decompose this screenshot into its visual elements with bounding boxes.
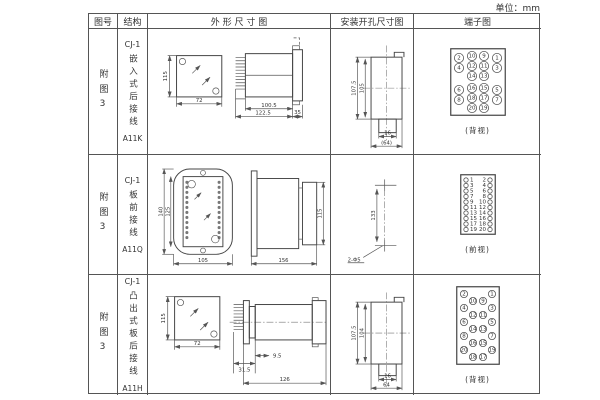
dim-front-inner-h: 125 xyxy=(165,207,171,217)
structure-label: 嵌入式后接线 xyxy=(127,54,139,129)
install-cell-a11k: 107.5 105 16 (64) xyxy=(331,29,414,155)
svg-text:5: 5 xyxy=(490,319,494,325)
dim-side-d1: 31.5 xyxy=(238,367,250,373)
dim-front-outer-h: 140 xyxy=(158,207,164,217)
outline-cell-a11h: 115 72 31.5 9.5 126 xyxy=(148,275,331,395)
header-terminal-diagram: 端子图 xyxy=(464,15,491,28)
dim-side-overall: 122.5 xyxy=(255,110,270,116)
svg-text:7: 7 xyxy=(495,97,499,103)
terminal-cell-a11h: 2468201012141618911131517135719 (背视) xyxy=(414,275,541,395)
terminal-diagram-front-a11q: 1234567891011121314151617181920 xyxy=(460,174,496,235)
svg-text:18: 18 xyxy=(469,354,476,360)
svg-text:18: 18 xyxy=(468,95,475,101)
dim-side-flange: 35 xyxy=(294,110,301,116)
svg-text:14: 14 xyxy=(469,326,476,332)
dim-front-height: 115 xyxy=(161,313,167,323)
svg-text:9: 9 xyxy=(481,298,485,304)
svg-text:17: 17 xyxy=(479,354,486,360)
header-figure-no: 图号 xyxy=(94,15,112,28)
svg-text:12: 12 xyxy=(469,312,476,318)
type-code: A11H xyxy=(122,384,142,393)
dim-hole-inner-h: 105 xyxy=(359,83,365,93)
svg-text:19: 19 xyxy=(488,347,495,353)
outline-drawing-a11k: 115 72 100.5 122.5 35 xyxy=(149,32,329,152)
dim-side-inner: 100.5 xyxy=(261,102,276,108)
svg-text:12: 12 xyxy=(468,63,475,69)
terminal-cell-a11k: 2468101214161820911131517191357 (背视) xyxy=(414,29,541,155)
svg-text:1: 1 xyxy=(495,55,499,61)
model-label: CJ-1 xyxy=(125,176,141,185)
install-cell-a11q: 133 2-Φ5 xyxy=(331,155,414,275)
structure-label: 凸出式板后接线 xyxy=(127,291,139,379)
dim-front-width: 105 xyxy=(198,258,208,264)
dim-hole-outer-h: 107.5 xyxy=(351,80,357,95)
dim-front-width: 72 xyxy=(196,97,203,103)
svg-text:10: 10 xyxy=(469,298,476,304)
dim-hole-outer-h: 107.5 xyxy=(351,325,357,340)
install-drawing-a11h: 107.5 104 16 64 xyxy=(332,277,413,394)
svg-text:20: 20 xyxy=(460,347,467,353)
svg-text:20: 20 xyxy=(468,105,475,111)
dimension-spec-table: 图号 结构 外 形 尺 寸 图 安装开孔尺寸图 端子图 附图3 CJ-1 嵌入式… xyxy=(88,13,540,394)
svg-text:6: 6 xyxy=(462,319,466,325)
terminal-view-caption: (前视) xyxy=(465,244,490,255)
svg-text:15: 15 xyxy=(479,340,486,346)
type-code: A11Q xyxy=(122,245,143,254)
model-label: CJ-1 xyxy=(125,277,141,286)
figure-number: 附图3 xyxy=(97,312,110,358)
svg-text:6: 6 xyxy=(457,87,461,93)
dim-hole-outer-w: (64) xyxy=(381,140,392,146)
header-mounting-holes: 安装开孔尺寸图 xyxy=(340,15,403,28)
outline-drawing-a11q: 140 125 105 115 156 xyxy=(149,156,329,273)
dim-hole-spacing: 133 xyxy=(370,210,376,220)
svg-text:8: 8 xyxy=(457,97,461,103)
dim-side-d2: 9.5 xyxy=(273,353,282,359)
outline-cell-a11q: 140 125 105 115 156 xyxy=(148,155,331,275)
dim-hole-inner-h: 104 xyxy=(359,327,365,338)
figure-number: 附图3 xyxy=(97,192,110,238)
terminal-view-caption: (背视) xyxy=(465,125,490,136)
outline-cell-a11k: 115 72 100.5 122.5 35 xyxy=(148,29,331,155)
terminal-cell-a11q: 1234567891011121314151617181920 (前视) xyxy=(414,155,541,275)
svg-text:14: 14 xyxy=(468,73,475,79)
install-drawing-a11q: 133 2-Φ5 xyxy=(332,156,413,273)
structure-cell-a11q: CJ-1 板前接线 A11Q xyxy=(118,155,148,275)
header-outline-dimensions: 外 形 尺 寸 图 xyxy=(211,15,267,28)
svg-text:7: 7 xyxy=(490,333,494,339)
svg-text:5: 5 xyxy=(495,87,499,93)
outline-drawing-a11h: 115 72 31.5 9.5 126 xyxy=(149,277,329,394)
dim-side-height: 115 xyxy=(317,209,323,219)
type-code: A11K xyxy=(123,134,143,143)
dim-front-height: 115 xyxy=(163,71,169,81)
svg-text:3: 3 xyxy=(490,305,494,311)
install-cell-a11h: 107.5 104 16 64 xyxy=(331,275,414,395)
svg-text:3: 3 xyxy=(495,65,499,71)
terminal-diagram-back-a11h: 2468201012141618911131517135719 xyxy=(456,286,500,365)
dim-hole-inner-w: 16 xyxy=(384,130,391,136)
svg-text:8: 8 xyxy=(462,333,466,339)
dim-side-length: 156 xyxy=(279,258,289,264)
svg-text:20: 20 xyxy=(479,227,486,233)
svg-text:19: 19 xyxy=(470,227,477,233)
model-label: CJ-1 xyxy=(125,40,141,49)
figure-number: 附图3 xyxy=(97,69,110,115)
structure-label: 板前接线 xyxy=(127,190,139,240)
svg-text:13: 13 xyxy=(479,326,486,332)
svg-text:2: 2 xyxy=(457,55,461,61)
structure-cell-a11h: CJ-1 凸出式板后接线 A11H xyxy=(118,275,148,395)
header-structure: 结构 xyxy=(123,15,141,28)
terminal-diagram-back-a11k: 2468101214161820911131517191357 xyxy=(450,48,506,116)
terminal-view-caption: (背视) xyxy=(465,374,490,385)
svg-text:11: 11 xyxy=(480,63,487,69)
dim-hole-outer-w: 64 xyxy=(383,382,390,388)
dim-side-length: 126 xyxy=(280,377,291,383)
hole-callout: 2-Φ5 xyxy=(347,257,360,263)
install-drawing-a11k: 107.5 105 16 (64) xyxy=(332,32,413,152)
datasheet-page: 单位：mm 图号 结构 外 形 尺 寸 图 安装开孔尺寸图 端子图 附图3 CJ… xyxy=(0,0,600,400)
structure-cell-a11k: CJ-1 嵌入式后接线 A11K xyxy=(118,29,148,155)
svg-text:19: 19 xyxy=(480,105,487,111)
svg-text:2: 2 xyxy=(462,291,466,297)
svg-text:9: 9 xyxy=(482,53,486,59)
dim-hole-inner-w: 16 xyxy=(384,373,391,379)
svg-text:10: 10 xyxy=(468,53,475,59)
svg-text:1: 1 xyxy=(490,291,494,297)
svg-text:16: 16 xyxy=(468,85,475,91)
svg-text:4: 4 xyxy=(462,305,466,311)
svg-text:13: 13 xyxy=(480,73,487,79)
svg-text:15: 15 xyxy=(480,85,487,91)
svg-text:11: 11 xyxy=(479,312,486,318)
svg-text:4: 4 xyxy=(457,65,461,71)
svg-text:17: 17 xyxy=(480,95,487,101)
svg-text:16: 16 xyxy=(469,340,476,346)
dim-front-width: 72 xyxy=(194,340,201,346)
